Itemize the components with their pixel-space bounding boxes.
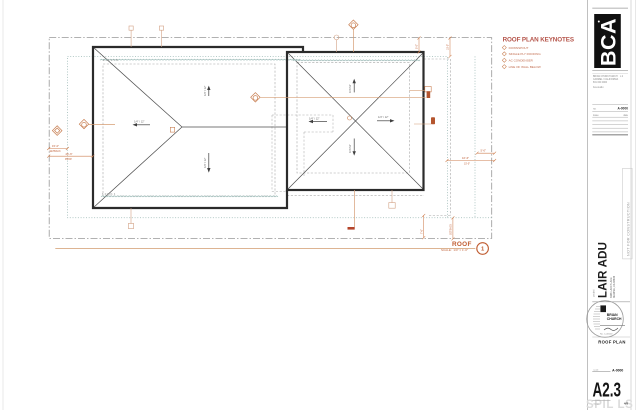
svg-text:E 05 2 5 B: E 05 2 5 B: [103, 59, 118, 62]
svg-text:MARINA, CA 93933: MARINA, CA 93933: [613, 275, 616, 298]
svg-text:15'-0": 15'-0": [447, 44, 450, 50]
svg-text:issue: issue: [593, 114, 599, 117]
svg-text:scale: scale: [593, 370, 599, 372]
svg-text:date: date: [623, 114, 628, 117]
svg-text:1/4" / 12": 1/4" / 12": [378, 115, 389, 119]
svg-text:15'-0": 15'-0": [464, 163, 470, 166]
svg-text:6 03 23 3: 6 03 23 3: [102, 193, 116, 196]
svg-text:26'-6": 26'-6": [66, 152, 73, 156]
svg-text:NOT FOR CONSTRUCTION: NOT FOR CONSTRUCTION: [627, 202, 631, 256]
svg-text:BRIAN CHURCH ARCH: BRIAN CHURCH ARCH: [593, 75, 618, 78]
svg-text:sheet: sheet: [593, 402, 599, 405]
svg-text:1/4"/12": 1/4"/12": [348, 144, 352, 153]
svg-text:project: project: [593, 289, 596, 296]
svg-text:LINE OF WALL BELOW: LINE OF WALL BELOW: [509, 65, 541, 69]
svg-text:CHURCH: CHURCH: [607, 317, 622, 321]
svg-text:DOWNSPOUT: DOWNSPOUT: [509, 46, 529, 50]
svg-text:1/4" / 12": 1/4" / 12": [203, 157, 207, 168]
svg-text:4/8: 4/8: [624, 401, 629, 405]
svg-text:ROOF PLAN KEYNOTES: ROOF PLAN KEYNOTES: [503, 37, 574, 44]
svg-text:1/4" / 12": 1/4" / 12": [134, 120, 145, 124]
svg-text:15'-0": 15'-0": [52, 144, 59, 148]
svg-text:16'-6": 16'-6": [462, 156, 469, 160]
svg-text:831 000 0000: 831 000 0000: [593, 82, 608, 84]
svg-text:5'-0": 5'-0": [481, 149, 487, 153]
svg-text:PROP.: PROP.: [65, 158, 72, 161]
svg-text:BCA: BCA: [596, 18, 620, 66]
svg-text:No. C-00000: No. C-00000: [600, 334, 613, 336]
svg-text:AC CONDENSER: AC CONDENSER: [509, 59, 534, 63]
svg-text:SETBACK: SETBACK: [450, 223, 453, 235]
svg-text:SETBACK: SETBACK: [50, 150, 62, 153]
svg-text:1/4"/12": 1/4"/12": [348, 84, 352, 93]
svg-text:7'-6": 7'-6": [421, 229, 424, 234]
svg-text:CARMEL / CALIFORNIA: CARMEL / CALIFORNIA: [593, 78, 619, 81]
svg-text:ROOF PLAN: ROOF PLAN: [598, 340, 625, 345]
svg-text:LAIR ADU: LAIR ADU: [598, 242, 610, 298]
svg-text:bca.studio: bca.studio: [593, 86, 604, 89]
svg-text:SINGLE PLY ROOFING: SINGLE PLY ROOFING: [509, 52, 542, 56]
svg-text:5'-0": 5'-0": [416, 44, 419, 49]
svg-text:1/4" / 12": 1/4" / 12": [309, 117, 320, 121]
svg-text:A-0000: A-0000: [618, 107, 629, 111]
svg-text:no.: no.: [593, 107, 597, 110]
svg-text:SCALE: 1/4" = 1'-0": SCALE: 1/4" = 1'-0": [441, 248, 468, 252]
svg-text:A-0000: A-0000: [612, 368, 623, 372]
svg-text:1/4" / 12": 1/4" / 12": [203, 85, 207, 96]
